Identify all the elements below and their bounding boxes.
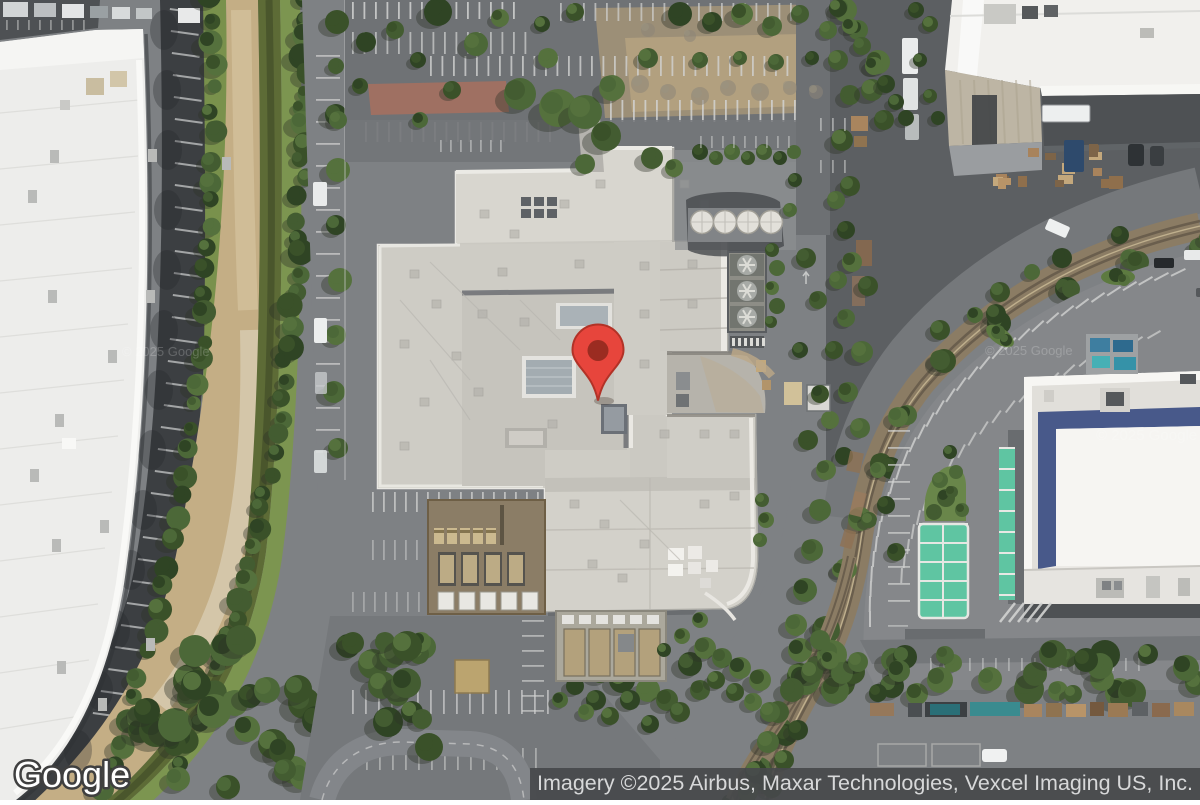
svg-text:Imagery ©2025 Airbus, Maxar Te: Imagery ©2025 Airbus, Maxar Technologies… — [537, 771, 1193, 795]
svg-text:© 2025 Google: © 2025 Google — [1096, 427, 1197, 444]
svg-text:Google: Google — [14, 754, 130, 795]
svg-text:© 2025 Google: © 2025 Google — [122, 344, 210, 359]
svg-text:© 2025 Google: © 2025 Google — [985, 343, 1073, 358]
